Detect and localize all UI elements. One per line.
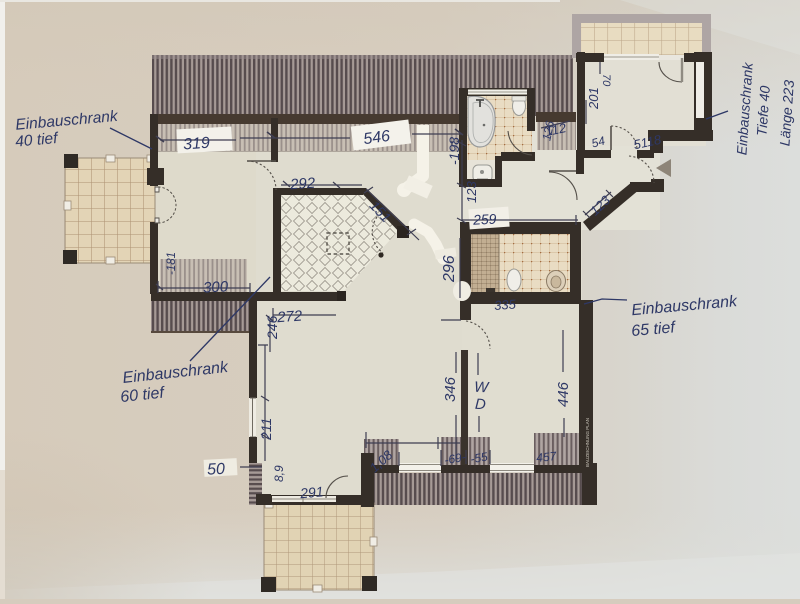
svg-text:259: 259 [472, 211, 497, 228]
svg-text:457: 457 [536, 449, 559, 465]
svg-text:-181: -181 [166, 252, 178, 275]
svg-text:50: 50 [207, 461, 226, 479]
svg-text:246: 246 [264, 315, 280, 340]
svg-text:300: 300 [203, 278, 230, 296]
svg-text:-198: -198 [446, 137, 462, 165]
svg-text:BAUZEICHNUNG PLAN: BAUZEICHNUNG PLAN [585, 418, 590, 467]
svg-text:211: 211 [258, 418, 274, 441]
svg-text:296: 296 [441, 255, 458, 283]
svg-text:346: 346 [442, 376, 459, 402]
svg-text:335: 335 [494, 296, 517, 313]
svg-text:D: D [475, 396, 487, 414]
svg-text:319: 319 [183, 135, 211, 154]
svg-text:123: 123 [464, 181, 479, 203]
svg-text:201: 201 [586, 87, 601, 110]
svg-text:446: 446 [555, 381, 572, 407]
svg-text:291: 291 [299, 483, 325, 501]
svg-text:292: 292 [289, 175, 317, 194]
svg-text:70: 70 [600, 74, 612, 87]
svg-text:8,9: 8,9 [272, 465, 286, 482]
